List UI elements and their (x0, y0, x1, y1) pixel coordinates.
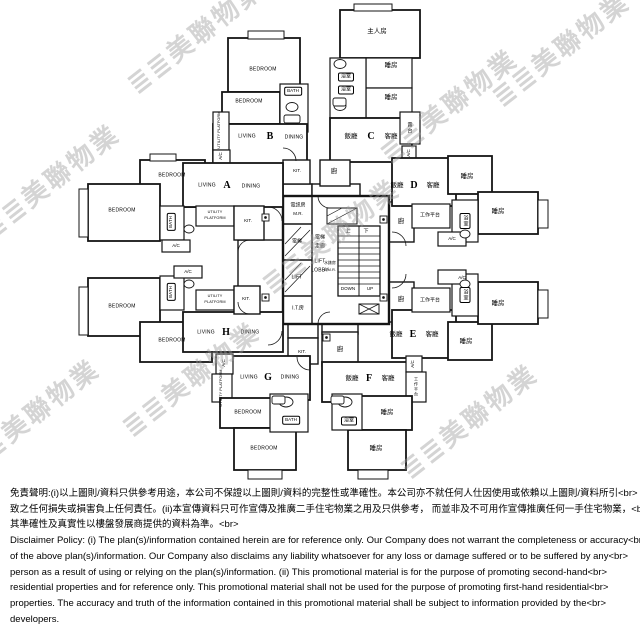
unit-d-bath-label: 浴室 (460, 213, 471, 229)
unit-c-kitchen-label: 廚 (331, 169, 338, 176)
core-telecom-room-abbr: M.R. (293, 212, 303, 217)
unit-e-bedroom1-label: 睡房 (492, 301, 505, 308)
unit-d-letter: D (410, 181, 417, 191)
unit-c-balcony-label: 露台 (407, 122, 412, 134)
stair-down-zh-label: 下 (363, 230, 368, 235)
stair-down-en-label: DOWN (341, 287, 355, 292)
core-it-room-label: I.T.房 (292, 307, 304, 312)
disclaimer-en-line: of the above plan(s)/information. Our Co… (10, 549, 632, 565)
unit-g-kitchen-label: KIT. (298, 350, 306, 355)
unit-f-living-label: 客廳 (382, 376, 395, 383)
unit-c-living-label: 客廳 (385, 134, 398, 141)
unit-e-kitchen-label: 廚 (398, 297, 405, 304)
unit-b-bedroom2-label: BEDROOM (235, 100, 262, 105)
unit-h-ac-label: A/C (184, 270, 192, 275)
unit-a-utility-label-2: PLATFORM (204, 217, 225, 221)
unit-c-ac-label: A/C (407, 149, 412, 157)
unit-h-dining-label: DINING (241, 331, 260, 336)
unit-a-bedroom1-label: BEDROOM (158, 174, 185, 179)
core-lobby-label-1: 電梯 (315, 236, 325, 241)
unit-f-kitchen-label: 廚 (337, 347, 344, 354)
unit-h-utility-label-1: UTILITY (208, 295, 223, 299)
unit-f-bedroom1-label: 睡房 (381, 410, 394, 417)
unit-c-bath2-label: 浴室 (338, 86, 354, 95)
core-meter-room-label: 水錶房 (324, 262, 336, 266)
unit-a-kitchen-label: KIT. (244, 219, 252, 224)
unit-d-ac-label: A/C (448, 237, 456, 242)
disclaimer-zh-line: 其準確性及真實性以樓盤發展商提供的資料為準。<br> (10, 517, 632, 533)
unit-a-letter: A (223, 181, 230, 191)
disclaimer-block: 免責聲明:(i)以上圖則/資料只供參考用途，本公司不保證以上圖則/資料的完整性或… (10, 486, 632, 627)
unit-g-bedroom1-label: BEDROOM (234, 411, 261, 416)
stair-up-zh-label: 上 (345, 230, 350, 235)
unit-b-dining-label: DINING (285, 136, 304, 141)
disclaimer-en-line: person as a result of using or relying o… (10, 565, 632, 581)
unit-e-utility-label: 工作平台 (420, 299, 440, 304)
stair-up-en-label: UP (367, 287, 373, 292)
unit-c-bath1-label: 浴室 (338, 73, 354, 82)
unit-e-bath-label: 浴室 (460, 287, 471, 303)
unit-c-letter: C (367, 132, 374, 142)
unit-e-living-label: 客廳 (426, 332, 439, 339)
unit-a-living-label: LIVING (198, 184, 216, 189)
unit-d-kitchen-label: 廚 (398, 219, 405, 226)
unit-h-living-label: LIVING (197, 331, 215, 336)
unit-c-dining-label: 飯廳 (345, 134, 358, 141)
unit-h-utility-label-2: PLATFORM (204, 301, 225, 305)
unit-a-ac-label: A/C (172, 244, 180, 249)
unit-g-ac-label: A/C (222, 359, 227, 367)
floorplan-page: 電訊房 M.R. 電梯 LIFT 電梯 走廊 LIFT LOBBY 水錶房 A.… (0, 0, 640, 631)
unit-g-bedroom2-label: BEDROOM (250, 447, 277, 452)
unit-b-kitchen-label: KIT. (293, 169, 301, 174)
unit-e-bedroom2-label: 睡房 (460, 339, 473, 346)
unit-e-letter: E (410, 330, 417, 340)
unit-c-bedroom2-label: 睡房 (385, 95, 398, 102)
unit-e-ac-label: A/C (458, 276, 466, 281)
unit-g-letter: G (264, 373, 272, 383)
disclaimer-zh-line: 致之任何損失或損害負上任何責任。(ii)本宣傳資料只可作宣傳及推廣二手住宅物業之… (10, 502, 632, 518)
unit-a-dining-label: DINING (242, 185, 261, 190)
unit-f-bath-label: 浴室 (341, 417, 357, 426)
unit-d-bedroom2-label: 睡房 (492, 209, 505, 216)
unit-f-bedroom2-label: 睡房 (370, 446, 383, 453)
unit-d-bedroom1-label: 睡房 (461, 174, 474, 181)
unit-d-utility-label: 工作平台 (420, 214, 440, 219)
unit-b-utility-label: UTILITY PLATFORM (218, 111, 222, 148)
core-lift-en-label: LIFT (291, 276, 302, 281)
unit-e-dining-label: 飯廳 (390, 332, 403, 339)
unit-g-utility-label: UTILITY PLATFORM (220, 369, 224, 406)
unit-c-master-bedroom-label: 主人房 (367, 29, 387, 36)
unit-b-ac-label: A/C (219, 152, 224, 160)
disclaimer-en-line: developers. (10, 612, 632, 628)
core-lift-zh-label: 電梯 (292, 240, 302, 245)
core-lobby-label-2: 走廊 (315, 245, 325, 250)
unit-h-bath-label: BATH (167, 283, 176, 301)
unit-a-bath-label: BATH (167, 213, 176, 231)
core-telecom-room-label: 電訊房 (290, 204, 305, 209)
floor-plan-drawing (0, 0, 640, 485)
unit-a-utility-label-1: UTILITY (208, 211, 223, 215)
unit-h-bedroom2-label: BEDROOM (158, 339, 185, 344)
unit-f-dining-label: 飯廳 (346, 376, 359, 383)
disclaimer-zh-line: 免責聲明:(i)以上圖則/資料只供參考用途，本公司不保證以上圖則/資料的完整性或… (10, 486, 632, 502)
disclaimer-en-line: residential properties and for reference… (10, 580, 632, 596)
unit-b-living-label: LIVING (238, 135, 256, 140)
disclaimer-en-line: Disclaimer Policy: (i) The plan(s)/infor… (10, 533, 632, 549)
unit-d-living-label: 客廳 (427, 183, 440, 190)
unit-g-dining-label: DINING (281, 376, 300, 381)
unit-b-letter: B (267, 132, 274, 142)
unit-d-dining-label: 飯廳 (391, 183, 404, 190)
disclaimer-en-line: properties. The accuracy and truth of th… (10, 596, 632, 612)
unit-b-bath-label: BATH (284, 87, 302, 96)
unit-g-bath-label: BATH (282, 416, 300, 425)
unit-h-kitchen-label: KIT. (242, 297, 250, 302)
unit-h-letter: H (222, 328, 230, 338)
unit-f-utility-label: 工作平台 (414, 377, 418, 397)
unit-h-bedroom1-label: BEDROOM (108, 305, 135, 310)
unit-b-bedroom1-label: BEDROOM (249, 68, 276, 73)
unit-a-bedroom2-label: BEDROOM (108, 209, 135, 214)
unit-c-bedroom1-label: 睡房 (385, 63, 398, 70)
unit-f-letter: F (366, 374, 372, 384)
unit-g-living-label: LIVING (240, 376, 258, 381)
core-meter-room-abbr: A.M.R. (324, 269, 336, 273)
unit-f-ac-label: A/C (411, 360, 416, 368)
